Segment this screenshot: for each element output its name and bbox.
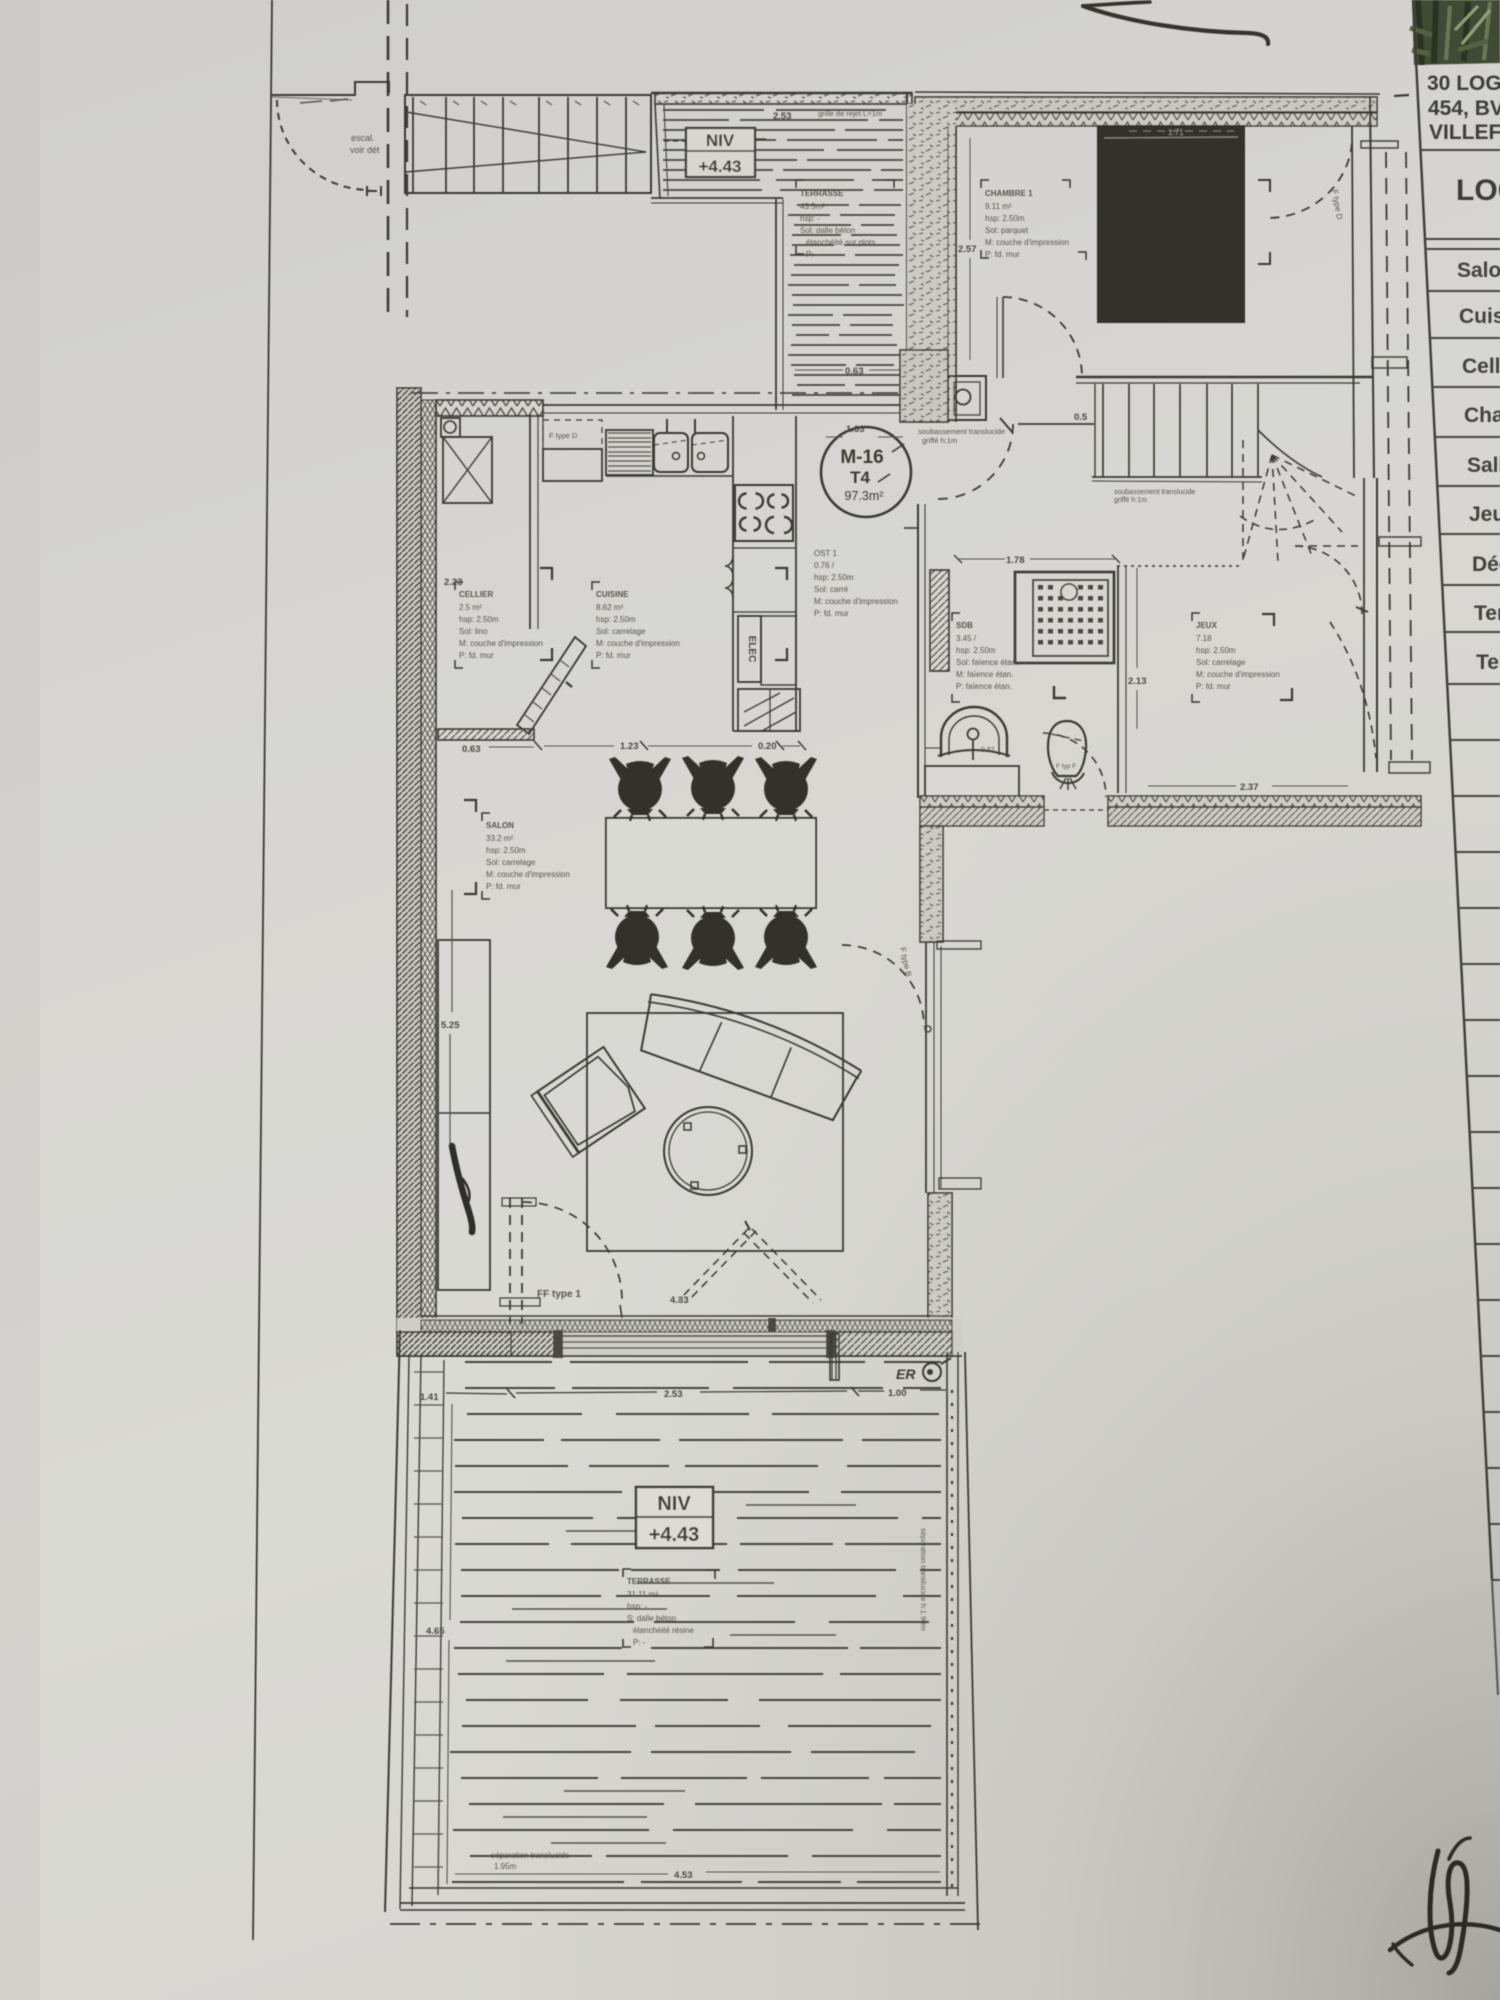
svg-text:JEUX: JEUX <box>1196 621 1218 630</box>
svg-text:P: fd. mur: P: fd. mur <box>596 651 631 660</box>
svg-text:SDB: SDB <box>956 621 973 630</box>
svg-text:1.78: 1.78 <box>1006 555 1025 566</box>
svg-text:0.76 /: 0.76 / <box>814 561 835 570</box>
svg-text:hsp: 2.50m: hsp: 2.50m <box>956 646 996 655</box>
svg-text:S: dalle béton: S: dalle béton <box>627 1614 676 1623</box>
svg-text:SALON: SALON <box>486 821 514 830</box>
svg-text:Cellie: Cellie <box>1462 355 1500 378</box>
svg-text:Déga: Déga <box>1472 553 1500 576</box>
svg-text:voir dét: voir dét <box>350 145 380 155</box>
svg-text:OST 1: OST 1 <box>814 549 838 558</box>
svg-text:1.41: 1.41 <box>420 1392 439 1403</box>
svg-text:M: couche d'impression: M: couche d'impression <box>985 238 1069 247</box>
svg-text:étanchéité sur plots: étanchéité sur plots <box>806 238 875 247</box>
svg-text:P: fd. mur: P: fd. mur <box>985 250 1020 259</box>
svg-text:2.53: 2.53 <box>664 1389 683 1400</box>
svg-text:grille de rejet L=1m: grille de rejet L=1m <box>818 109 882 118</box>
svg-text:FF type 1: FF type 1 <box>537 1289 581 1300</box>
svg-text:M: couche d'impression: M: couche d'impression <box>459 639 543 648</box>
svg-text:M: couche d'impression: M: couche d'impression <box>814 597 898 606</box>
svg-text:LOG: LOG <box>1456 174 1500 207</box>
svg-text:hsp: -: hsp: - <box>627 1602 647 1611</box>
svg-text:4.53: 4.53 <box>674 1870 693 1881</box>
svg-text:hsp: -: hsp: - <box>800 214 820 223</box>
svg-text:Sol: lino: Sol: lino <box>459 627 488 636</box>
svg-text:33.2 m²: 33.2 m² <box>486 834 513 843</box>
svg-text:Sol: carrelage: Sol: carrelage <box>486 858 536 867</box>
svg-text:Cham: Cham <box>1464 404 1500 427</box>
svg-text:2.23: 2.23 <box>444 577 463 588</box>
svg-text:M-16: M-16 <box>840 447 883 468</box>
svg-text:Terr: Terr <box>1476 651 1500 674</box>
svg-text:hsp: 2.50m: hsp: 2.50m <box>596 615 636 624</box>
svg-text:étanchéité résine: étanchéité résine <box>633 1626 694 1635</box>
svg-text:97.3m²: 97.3m² <box>845 489 884 503</box>
svg-text:M: couche d'impression: M: couche d'impression <box>596 639 680 648</box>
svg-text:P: fd. mur: P: fd. mur <box>814 609 849 618</box>
svg-text:1.63: 1.63 <box>846 424 865 435</box>
svg-text:M: faïence étan.: M: faïence étan. <box>956 670 1013 679</box>
svg-text:0.87: 0.87 <box>981 747 995 754</box>
svg-text:F typ F: F typ F <box>1056 763 1076 770</box>
svg-text:8.62 m²: 8.62 m² <box>596 603 623 612</box>
svg-text:TERRASSE: TERRASSE <box>627 1577 671 1586</box>
svg-text:2.53: 2.53 <box>773 111 792 122</box>
svg-text:CHAMBRE 1: CHAMBRE 1 <box>985 189 1033 198</box>
svg-text:escal.: escal. <box>351 133 375 143</box>
svg-text:P: fd. mur: P: fd. mur <box>1196 682 1231 691</box>
svg-text:NIV: NIV <box>706 131 735 150</box>
svg-text:+4.43: +4.43 <box>698 157 741 176</box>
svg-text:hsp: 2.50m: hsp: 2.50m <box>459 615 499 624</box>
svg-text:P: -: P: - <box>633 1638 646 1647</box>
svg-text:ELEC: ELEC <box>746 636 757 663</box>
svg-text:4.65: 4.65 <box>426 1626 445 1637</box>
svg-text:Terra: Terra <box>1474 602 1500 625</box>
svg-text:2.57: 2.57 <box>958 244 977 255</box>
svg-text:+4.43: +4.43 <box>649 1524 700 1546</box>
svg-text:43.5m²: 43.5m² <box>800 202 825 211</box>
svg-text:0.63: 0.63 <box>462 744 481 755</box>
svg-text:TERRASSE: TERRASSE <box>800 189 844 198</box>
svg-text:1.71: 1.71 <box>1168 128 1184 137</box>
svg-text:Sol: faïence étan.: Sol: faïence étan. <box>956 658 1018 667</box>
svg-text:Cuisin: Cuisin <box>1459 305 1500 328</box>
svg-text:Jeux: Jeux <box>1469 503 1500 526</box>
svg-text:4.33: 4.33 <box>670 1295 689 1306</box>
svg-text:CELLIER: CELLIER <box>459 590 493 599</box>
svg-text:31.11 m²: 31.11 m² <box>627 1590 658 1599</box>
svg-text:ER: ER <box>896 1366 916 1382</box>
svg-text:hsp: 2.50m: hsp: 2.50m <box>814 573 854 582</box>
svg-text:hsp: 2.50m: hsp: 2.50m <box>486 846 526 855</box>
svg-text:Salle: Salle <box>1467 454 1500 477</box>
svg-text:30 LOGE: 30 LOGE <box>1427 72 1500 95</box>
svg-text:VILLEFR: VILLEFR <box>1429 121 1500 144</box>
svg-text:soubassement translucide: soubassement translucide <box>1114 489 1195 496</box>
svg-text:2.5 m²: 2.5 m² <box>459 603 482 612</box>
svg-text:F type D: F type D <box>549 431 578 440</box>
svg-text:Sol: carrelage: Sol: carrelage <box>1196 658 1246 667</box>
svg-text:NIV: NIV <box>657 1493 691 1515</box>
svg-text:griffé h:1m: griffé h:1m <box>922 436 957 445</box>
svg-text:P: fd. mur: P: fd. mur <box>486 882 521 891</box>
svg-text:Sol: carrelage: Sol: carrelage <box>596 627 646 636</box>
svg-text:1.23: 1.23 <box>620 741 639 752</box>
svg-text:Sol: dalle béton: Sol: dalle béton <box>800 226 855 235</box>
svg-text:454, BV: 454, BV <box>1428 97 1500 120</box>
svg-text:griffé h:1m: griffé h:1m <box>1114 497 1147 504</box>
svg-text:T4: T4 <box>850 468 870 487</box>
svg-text:0.63: 0.63 <box>845 366 864 377</box>
svg-text:M: couche d'impression: M: couche d'impression <box>486 870 570 879</box>
svg-text:séparation translucide: séparation translucide <box>491 1851 570 1860</box>
svg-text:P: -: P: - <box>806 250 819 259</box>
svg-text:2.13: 2.13 <box>1128 676 1147 687</box>
svg-text:9.11 m²: 9.11 m² <box>985 202 1012 211</box>
svg-text:7.18: 7.18 <box>1196 634 1212 643</box>
svg-text:Sol: carré: Sol: carré <box>814 585 849 594</box>
svg-text:0.20: 0.20 <box>758 741 777 752</box>
svg-text:P: faïence étan.: P: faïence étan. <box>956 682 1012 691</box>
svg-text:3.45 /: 3.45 / <box>956 634 977 643</box>
svg-text:soubassement translucide: soubassement translucide <box>918 427 1005 436</box>
svg-text:P: fd. mur: P: fd. mur <box>459 651 494 660</box>
svg-text:Sol: parquet: Sol: parquet <box>985 226 1029 235</box>
svg-text:1.95m: 1.95m <box>494 1862 517 1871</box>
svg-text:1.00: 1.00 <box>888 1388 907 1399</box>
svg-text:hsp: 2.50m: hsp: 2.50m <box>1196 646 1236 655</box>
svg-text:Salon: Salon <box>1457 259 1500 282</box>
svg-text:hsp: 2.50m: hsp: 2.50m <box>985 214 1025 223</box>
svg-text:5.25: 5.25 <box>441 1020 460 1031</box>
svg-text:0.5: 0.5 <box>1074 412 1088 423</box>
svg-text:2.37: 2.37 <box>1240 782 1259 793</box>
svg-text:CUISINE: CUISINE <box>596 590 629 599</box>
svg-text:séparation translucide h:1.90m: séparation translucide h:1.90m <box>919 1528 928 1631</box>
svg-text:M: couche d'impression: M: couche d'impression <box>1196 670 1280 679</box>
